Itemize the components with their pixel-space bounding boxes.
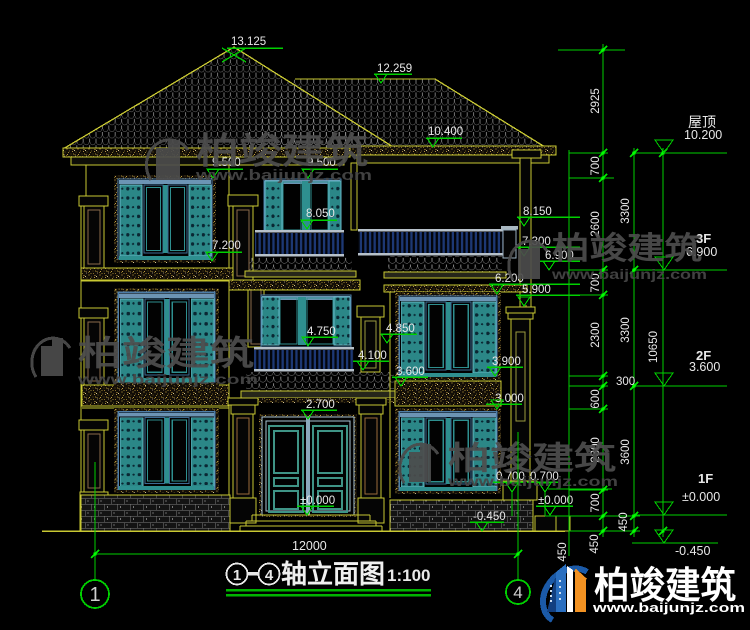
svg-text:3.600: 3.600 (396, 366, 425, 378)
svg-text:1: 1 (233, 567, 241, 584)
svg-text:4.850: 4.850 (386, 323, 415, 335)
svg-text:www.baijunjz.com: www.baijunjz.com (77, 371, 258, 387)
svg-text:3300: 3300 (620, 317, 632, 343)
svg-text:3.000: 3.000 (495, 393, 524, 405)
svg-text:柏竣建筑: 柏竣建筑 (552, 231, 702, 266)
svg-text:3.600: 3.600 (689, 360, 720, 374)
svg-text:2300: 2300 (590, 322, 602, 348)
svg-text:7.200: 7.200 (212, 240, 241, 252)
svg-text:1:100: 1:100 (387, 566, 430, 585)
svg-text:±0.000: ±0.000 (538, 495, 573, 507)
svg-text:600: 600 (590, 389, 602, 408)
svg-text:10.400: 10.400 (428, 126, 463, 138)
svg-text:10.200: 10.200 (684, 128, 722, 142)
svg-text:450: 450 (589, 534, 601, 553)
svg-text:2925: 2925 (590, 88, 602, 114)
svg-text:轴立面图: 轴立面图 (281, 559, 385, 589)
svg-text:3600: 3600 (620, 439, 632, 465)
svg-text:柏竣建筑: 柏竣建筑 (448, 440, 616, 476)
svg-text:700: 700 (590, 493, 602, 512)
svg-text:-0.450: -0.450 (473, 511, 506, 523)
svg-text:±0.000: ±0.000 (682, 490, 720, 504)
svg-text:450: 450 (557, 542, 569, 561)
svg-text:www.baijunjz.com: www.baijunjz.com (551, 266, 707, 282)
svg-text:±0.000: ±0.000 (300, 495, 335, 507)
svg-text:4: 4 (265, 567, 274, 584)
svg-text:12.259: 12.259 (377, 63, 412, 75)
svg-text:8.050: 8.050 (306, 208, 335, 220)
svg-text:柏竣建筑: 柏竣建筑 (78, 334, 254, 373)
svg-text:www.baijunjz.com: www.baijunjz.com (447, 473, 618, 489)
svg-text:-0.450: -0.450 (675, 544, 710, 558)
svg-text:2.700: 2.700 (306, 399, 335, 411)
svg-text:12000: 12000 (292, 539, 327, 553)
svg-text:3.900: 3.900 (492, 356, 521, 368)
svg-text:1F: 1F (698, 471, 713, 486)
svg-text:450: 450 (618, 512, 630, 531)
svg-text:10650: 10650 (648, 331, 660, 363)
svg-text:www.baijunjz.com: www.baijunjz.com (592, 600, 745, 615)
svg-text:700: 700 (590, 156, 602, 175)
svg-text:8.150: 8.150 (523, 206, 552, 218)
svg-text:1: 1 (89, 584, 100, 606)
svg-text:柏竣建筑: 柏竣建筑 (196, 130, 368, 171)
svg-text:300: 300 (616, 376, 635, 388)
svg-text:3300: 3300 (620, 198, 632, 224)
svg-text:4.750: 4.750 (307, 326, 336, 338)
svg-text:4.100: 4.100 (358, 350, 387, 362)
svg-text:4: 4 (513, 583, 522, 602)
svg-text:13.125: 13.125 (231, 36, 266, 48)
svg-text:5.900: 5.900 (522, 284, 551, 296)
svg-text:www.baijunjz.com: www.baijunjz.com (195, 167, 372, 184)
